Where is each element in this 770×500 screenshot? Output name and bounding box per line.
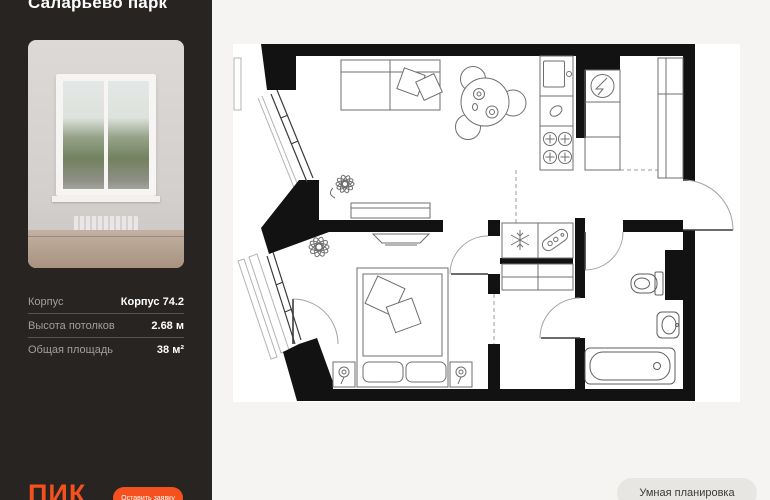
tv-icon xyxy=(373,234,429,245)
pik-logo: ПИК xyxy=(28,481,86,500)
floorplan-drawing xyxy=(233,44,740,402)
kitchen-sink-icon xyxy=(544,61,565,87)
bedroom-door-icon xyxy=(450,236,488,274)
detail-row-area: Общая площадь 38 м² xyxy=(28,338,184,361)
bathroom-door-icon xyxy=(540,298,580,338)
bed-pillow xyxy=(363,362,403,382)
plant-icon xyxy=(309,236,330,257)
apartment-photo xyxy=(28,40,184,268)
detail-value: 38 м² xyxy=(157,344,184,356)
bed-pillow xyxy=(406,362,446,382)
detail-value: Корпус 74.2 xyxy=(121,296,184,308)
photo-floor xyxy=(28,230,184,268)
project-title: Саларьево парк xyxy=(28,0,167,13)
entry-door-icon xyxy=(683,180,733,230)
toilet-icon xyxy=(631,272,663,295)
bed-icon xyxy=(357,268,448,387)
detail-label: Корпус xyxy=(28,296,63,308)
detail-label: Общая площадь xyxy=(28,344,113,356)
nightstand-lamp-icon xyxy=(450,362,472,387)
sofa-icon xyxy=(341,60,442,110)
smart-layout-button[interactable]: Умная планировка xyxy=(617,478,757,500)
plant-icon xyxy=(330,174,354,198)
detail-label: Высота потолков xyxy=(28,320,115,332)
window-pane-left xyxy=(63,81,104,189)
snowflake-icon xyxy=(511,230,529,250)
window-pane-right xyxy=(108,81,149,189)
fridge-icon xyxy=(585,70,620,102)
detail-value: 2.68 м xyxy=(151,320,184,332)
detail-row-ceiling: Высота потолков 2.68 м xyxy=(28,314,184,338)
ironing-board-icon xyxy=(540,227,570,253)
photo-window xyxy=(56,74,156,196)
stove-icon xyxy=(544,133,572,164)
hall-closet xyxy=(502,223,573,290)
wc-door-icon xyxy=(585,232,623,270)
nightstand-lamp-icon xyxy=(333,362,355,387)
kitchen-cabinet-icon xyxy=(585,102,620,170)
wardrobe-icon xyxy=(658,58,683,178)
detail-row-korpus: Корпус Корпус 74.2 xyxy=(28,290,184,314)
bathtub-icon xyxy=(585,348,675,384)
console-icon xyxy=(351,203,430,218)
bath-sink-icon xyxy=(657,312,679,338)
window-sill xyxy=(52,196,160,202)
request-button[interactable]: Оставить заявку xyxy=(113,487,183,500)
sidebar: Саларьево парк Корпус Корпус 74.2 Высота… xyxy=(0,0,212,500)
floorplan-card xyxy=(233,44,740,402)
kitchen-counter xyxy=(540,56,573,170)
dining-table-icon xyxy=(456,67,527,140)
widget-root: Саларьево парк Корпус Корпус 74.2 Высота… xyxy=(0,0,770,500)
apartment-details: Корпус Корпус 74.2 Высота потолков 2.68 … xyxy=(28,290,184,361)
